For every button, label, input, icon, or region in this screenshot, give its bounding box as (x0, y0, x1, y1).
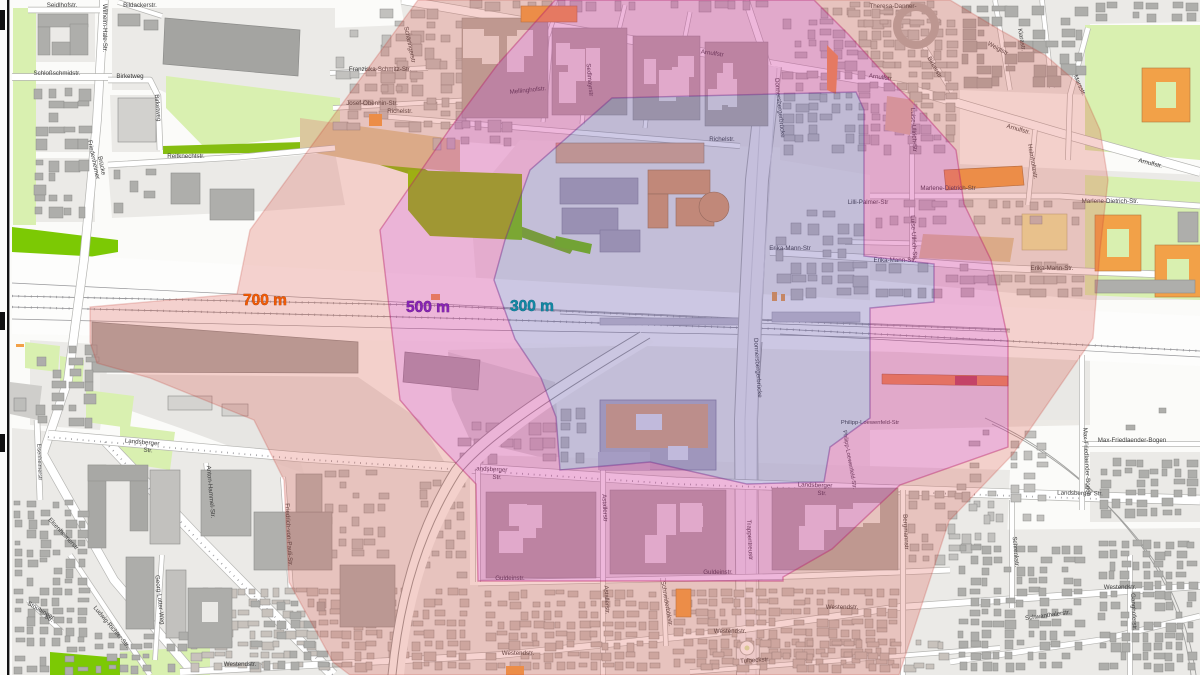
svg-text:Seidlhofstr.: Seidlhofstr. (47, 2, 78, 9)
svg-text:Schloßschmidstr.: Schloßschmidstr. (33, 70, 80, 77)
svg-text:Landsberger Str.: Landsberger Str. (1057, 490, 1103, 498)
svg-text:Str.: Str. (143, 447, 153, 455)
svg-text:Elsenheimerstr: Elsenheimerstr (35, 444, 42, 481)
svg-text:Bildackerstr.: Bildackerstr. (123, 2, 157, 9)
svg-text:Reitknechtstr.: Reitknechtstr. (167, 153, 205, 160)
svg-text:Westendstr.: Westendstr. (224, 661, 257, 668)
svg-text:Birketweg: Birketweg (116, 73, 144, 80)
svg-text:500 m: 500 m (406, 299, 450, 316)
svg-text:Wilhelm-Hale-Str.: Wilhelm-Hale-Str. (101, 4, 108, 52)
svg-text:700 m: 700 m (243, 292, 287, 309)
svg-text:300 m: 300 m (510, 298, 554, 315)
svg-text:Max-Friedlaender-Bogen: Max-Friedlaender-Bogen (1098, 437, 1167, 444)
svg-text:Westendstr.: Westendstr. (1104, 584, 1137, 591)
